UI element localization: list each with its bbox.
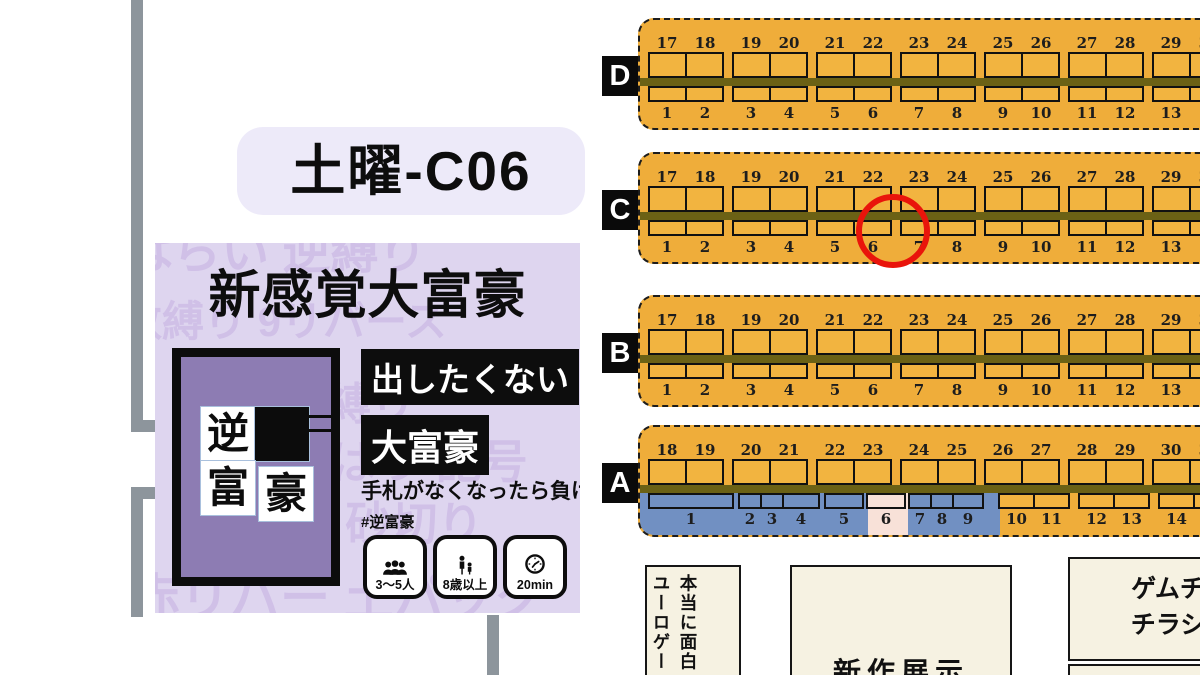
booth-number: 19 [686, 441, 724, 459]
floor-map-page: 土曜-C06 はらい 逆縛り数縛り 9リバーススート縛りしばり 記号8切り 砂切… [0, 0, 1200, 675]
booth-number: 5 [816, 104, 854, 122]
booth-A-cell-28[interactable] [1068, 459, 1107, 485]
booth-cells [640, 86, 1200, 102]
booth-number: 19 [732, 168, 770, 186]
booth-number: 21 [816, 168, 854, 186]
seat-A-7: 7 [908, 493, 932, 529]
booth-number: 12 [1106, 104, 1144, 122]
booth-A-cell-3[interactable] [760, 493, 784, 509]
booth-C-cell-3[interactable] [732, 220, 771, 236]
booth-B-cell-27[interactable] [1068, 329, 1107, 355]
booth-number: 9 [984, 238, 1022, 256]
booth-number: 27 [1068, 34, 1106, 52]
booth-C-cell-2[interactable] [685, 220, 724, 236]
booth-cells-custom: 123456789101112131415 [640, 493, 1200, 529]
booth-number: 19 [732, 311, 770, 329]
booth-row-A: 1819202122232425262728293031123456789101… [638, 425, 1200, 537]
booth-A-cell-22[interactable] [816, 459, 855, 485]
row-label-D: D [602, 56, 638, 96]
booth-cells [640, 363, 1200, 379]
booth-number: 28 [1068, 441, 1106, 459]
booth-number: 8 [938, 381, 976, 399]
wall-left-lower [131, 487, 143, 617]
booth-B-cell-14[interactable] [1189, 363, 1200, 379]
booth-number: 24 [938, 34, 976, 52]
booth-C-cell-14[interactable] [1189, 220, 1200, 236]
booth-B-cell-21[interactable] [816, 329, 855, 355]
catch-copy-top: 出したくない [361, 349, 579, 405]
booth-number: 20 [732, 441, 770, 459]
booth-D-cell-21[interactable] [816, 52, 855, 78]
booth-number: 13 [1152, 238, 1190, 256]
logo-tile-gou: 豪 [259, 467, 313, 521]
booth-number: 23 [854, 441, 892, 459]
seat-A-13: 13 [1113, 493, 1150, 529]
booth-number: 6 [866, 509, 906, 529]
logo-tile-fu: 富 [201, 461, 255, 515]
booth-row-B: 1718192021222324252627282930123456789101… [638, 295, 1200, 407]
booth-number: 8 [938, 238, 976, 256]
booth-number: 12 [1106, 381, 1144, 399]
booth-number: 10 [1022, 381, 1060, 399]
booth-B-cell-11[interactable] [1068, 363, 1107, 379]
booth-D-cell-12[interactable] [1105, 86, 1144, 102]
booth-number: 21 [770, 441, 808, 459]
seat-A-1: 1 [648, 493, 734, 529]
booth-number: 21 [816, 311, 854, 329]
booth-A-cell-10[interactable] [998, 493, 1035, 509]
booth-number: 9 [984, 381, 1022, 399]
booth-C-cell-4[interactable] [769, 220, 808, 236]
age-label: 8歳以上 [443, 578, 487, 593]
booth-A-cell-9[interactable] [952, 493, 984, 509]
booth-A-cell-25[interactable] [937, 459, 976, 485]
booth-number: 21 [816, 34, 854, 52]
booth-number: 27 [1068, 311, 1106, 329]
booth-A-cell-12[interactable] [1078, 493, 1115, 509]
booth-number: 25 [984, 168, 1022, 186]
flyer-title: 新感覚大富豪 [155, 253, 580, 328]
game-logo-box: 逆 富 豪 [172, 348, 340, 586]
booth-number: 13 [1113, 509, 1150, 529]
booth-number: 13 [1152, 381, 1190, 399]
booth-number: 9 [984, 104, 1022, 122]
booth-C-cell-11[interactable] [1068, 220, 1107, 236]
booth-A-cell-18[interactable] [648, 459, 687, 485]
players-badge: 3〜5人 [363, 535, 427, 599]
booth-C-cell-27[interactable] [1068, 186, 1107, 212]
booth-B-cell-24[interactable] [937, 329, 976, 355]
booth-number: 22 [854, 34, 892, 52]
booth-A-cell-8[interactable] [930, 493, 954, 509]
booth-B-cell-30[interactable] [1189, 329, 1200, 355]
booth-A-cell-24[interactable] [900, 459, 939, 485]
booth-numbers-top: 1819202122232425262728293031 [640, 427, 1200, 459]
players-icon [380, 560, 410, 577]
booth-B-cell-17[interactable] [648, 329, 687, 355]
booth-number: 12 [1106, 238, 1144, 256]
booth-D-cell-30[interactable] [1189, 52, 1200, 78]
booth-C-cell-26[interactable] [1021, 186, 1060, 212]
booth-A-cell-4[interactable] [782, 493, 820, 509]
booth-number: 30 [1152, 441, 1190, 459]
booth-number: 24 [938, 168, 976, 186]
booth-number: 14 [1190, 381, 1200, 399]
booth-number: 7 [900, 104, 938, 122]
booth-D-cell-18[interactable] [685, 52, 724, 78]
booth-number: 20 [770, 34, 808, 52]
booth-number: 5 [824, 509, 864, 529]
booth-number: 3 [732, 104, 770, 122]
flyer-rack-booth: ゲムチ チラシ [1068, 557, 1200, 661]
booth-number: 2 [686, 104, 724, 122]
booth-B-cell-8[interactable] [937, 363, 976, 379]
booth-number: 24 [900, 441, 938, 459]
booth-B-cell-29[interactable] [1152, 329, 1191, 355]
booth-D-cell-14[interactable] [1189, 86, 1200, 102]
booth-A-cell-15[interactable] [1193, 493, 1200, 509]
booth-number: 7 [900, 381, 938, 399]
booth-number: 23 [900, 168, 938, 186]
booth-B-cell-5[interactable] [816, 363, 855, 379]
booth-cells [640, 329, 1200, 355]
booth-D-cell-28[interactable] [1105, 52, 1144, 78]
booth-number: 20 [770, 311, 808, 329]
age-icon [454, 555, 476, 577]
booth-C-cell-8[interactable] [937, 220, 976, 236]
booth-number: 7 [908, 509, 932, 529]
booth-B-cell-12[interactable] [1105, 363, 1144, 379]
booth-numbers-top: 1718192021222324252627282930 [640, 154, 1200, 186]
flyer-rack-label: ゲムチ チラシ [1070, 559, 1200, 643]
booth-number: 29 [1152, 311, 1190, 329]
booth-A-cell-21[interactable] [769, 459, 808, 485]
booth-C-cell-17[interactable] [648, 186, 687, 212]
booth-D-cell-29[interactable] [1152, 52, 1191, 78]
booth-C-cell-24[interactable] [937, 186, 976, 212]
booth-B-cell-20[interactable] [769, 329, 808, 355]
booth-number: 14 [1158, 509, 1195, 529]
booth-D-cell-23[interactable] [900, 52, 939, 78]
booth-cells [640, 459, 1200, 485]
booth-number: 9 [952, 509, 984, 529]
booth-D-cell-2[interactable] [685, 86, 724, 102]
catch-copy-bottom: 大富豪 [361, 415, 489, 475]
booth-D-cell-25[interactable] [984, 52, 1023, 78]
booth-number: 30 [1190, 311, 1200, 329]
booth-D-cell-27[interactable] [1068, 52, 1107, 78]
booth-number: 10 [1022, 238, 1060, 256]
table-band [640, 355, 1200, 363]
booth-number: 25 [984, 311, 1022, 329]
booth-number: 1 [648, 381, 686, 399]
booth-A-cell-31[interactable] [1189, 459, 1200, 485]
booth-number: 2 [686, 238, 724, 256]
booth-A-cell-11[interactable] [1033, 493, 1070, 509]
booth-number: 5 [816, 381, 854, 399]
booth-D-cell-11[interactable] [1068, 86, 1107, 102]
booth-B-cell-18[interactable] [685, 329, 724, 355]
booth-number: 13 [1152, 104, 1190, 122]
booth-C-cell-9[interactable] [984, 220, 1023, 236]
booth-number: 2 [738, 509, 762, 529]
new-works-label: 新作展示 [792, 651, 1010, 675]
booth-number: 5 [816, 238, 854, 256]
new-works-booth: 新作展示 [790, 565, 1012, 675]
seat-A-8: 8 [930, 493, 954, 529]
seat-A-2: 2 [738, 493, 762, 529]
booth-number: 30 [1190, 34, 1200, 52]
booth-D-cell-3[interactable] [732, 86, 771, 102]
booth-number: 8 [930, 509, 954, 529]
booth-number: 6 [854, 104, 892, 122]
booth-A-cell-20[interactable] [732, 459, 771, 485]
booth-A-cell-1[interactable] [648, 493, 734, 509]
booth-C-cell-20[interactable] [769, 186, 808, 212]
seat-A-5: 5 [824, 493, 864, 529]
booth-number: 6 [854, 381, 892, 399]
booth-number: 15 [1193, 509, 1200, 529]
flyer-tagline: 手札がなくなったら負け [361, 475, 580, 505]
seat-A-10: 10 [998, 493, 1035, 529]
booth-B-cell-26[interactable] [1021, 329, 1060, 355]
time-badge: 20min [503, 535, 567, 599]
booth-number: 4 [770, 381, 808, 399]
booth-number: 26 [1022, 34, 1060, 52]
booth-number: 11 [1033, 509, 1070, 529]
booth-B-cell-10[interactable] [1021, 363, 1060, 379]
booth-D-cell-19[interactable] [732, 52, 771, 78]
booth-D-cell-22[interactable] [853, 52, 892, 78]
booth-number: 10 [1022, 104, 1060, 122]
booth-number: 20 [770, 168, 808, 186]
booth-row-D: 1718192021222324252627282930123456789101… [638, 18, 1200, 130]
booth-number: 26 [1022, 311, 1060, 329]
booth-C-cell-28[interactable] [1105, 186, 1144, 212]
booth-B-cell-25[interactable] [984, 329, 1023, 355]
booth-numbers-bottom: 1234567891011121314 [640, 102, 1200, 128]
row-label-B: B [602, 333, 638, 373]
booth-D-cell-8[interactable] [937, 86, 976, 102]
booth-C-cell-29[interactable] [1152, 186, 1191, 212]
booth-A-cell-7[interactable] [908, 493, 932, 509]
booth-D-cell-20[interactable] [769, 52, 808, 78]
booth-D-cell-6[interactable] [853, 86, 892, 102]
booth-number: 2 [686, 381, 724, 399]
booth-D-cell-17[interactable] [648, 52, 687, 78]
glitch-line [293, 429, 340, 432]
booth-number: 28 [1106, 34, 1144, 52]
booth-number: 28 [1106, 168, 1144, 186]
booth-number: 23 [900, 311, 938, 329]
booth-D-cell-10[interactable] [1021, 86, 1060, 102]
row-label-A: A [602, 463, 638, 503]
booth-number: 1 [648, 104, 686, 122]
booth-number: 12 [1078, 509, 1115, 529]
booth-number: 3 [732, 381, 770, 399]
booth-number: 27 [1022, 441, 1060, 459]
booth-A-cell-30[interactable] [1152, 459, 1191, 485]
age-badge: 8歳以上 [433, 535, 497, 599]
booth-D-cell-26[interactable] [1021, 52, 1060, 78]
booth-C-cell-12[interactable] [1105, 220, 1144, 236]
booth-number: 4 [770, 238, 808, 256]
seat-A-6: 6 [866, 493, 906, 529]
booth-C-cell-10[interactable] [1021, 220, 1060, 236]
booth-numbers-top: 1718192021222324252627282930 [640, 297, 1200, 329]
booth-number: 17 [648, 34, 686, 52]
bottom-right-booth [1068, 664, 1200, 675]
booth-A-cell-19[interactable] [685, 459, 724, 485]
booth-C-cell-21[interactable] [816, 186, 855, 212]
booth-B-cell-28[interactable] [1105, 329, 1144, 355]
booth-D-cell-1[interactable] [648, 86, 687, 102]
seat-A-9: 9 [952, 493, 984, 529]
booth-number: 19 [732, 34, 770, 52]
booth-number: 17 [648, 168, 686, 186]
booth-B-cell-3[interactable] [732, 363, 771, 379]
logo-tile-gyaku: 逆 [201, 407, 255, 461]
booth-A-cell-29[interactable] [1105, 459, 1144, 485]
booth-B-cell-6[interactable] [853, 363, 892, 379]
booth-cells [640, 52, 1200, 78]
glitch-line [281, 415, 340, 418]
seat-A-4: 4 [782, 493, 820, 529]
wall-bottom-center [487, 615, 499, 675]
booth-number: 22 [816, 441, 854, 459]
booth-C-cell-19[interactable] [732, 186, 771, 212]
time-icon [523, 553, 547, 577]
flyer-hashtag: #逆富豪 [361, 511, 414, 532]
booth-numbers-bottom: 1234567891011121314 [640, 379, 1200, 405]
booth-B-cell-23[interactable] [900, 329, 939, 355]
booth-D-cell-13[interactable] [1152, 86, 1191, 102]
booth-B-cell-13[interactable] [1152, 363, 1191, 379]
booth-C-cell-13[interactable] [1152, 220, 1191, 236]
booth-D-cell-7[interactable] [900, 86, 939, 102]
booth-B-cell-9[interactable] [984, 363, 1023, 379]
booth-number: 10 [998, 509, 1035, 529]
seat-A-11: 11 [1033, 493, 1070, 529]
highlight-circle [856, 194, 930, 268]
booth-number: 25 [984, 34, 1022, 52]
booth-number: 30 [1190, 168, 1200, 186]
booth-number: 24 [938, 311, 976, 329]
booth-number: 8 [938, 104, 976, 122]
booth-number: 26 [984, 441, 1022, 459]
booth-A-cell-23[interactable] [853, 459, 892, 485]
booth-A-cell-14[interactable] [1158, 493, 1195, 509]
booth-C-cell-5[interactable] [816, 220, 855, 236]
game-flyer: はらい 逆縛り数縛り 9リバーススート縛りしばり 記号8切り 砂切り赤リバー 土… [155, 243, 580, 613]
booth-number: 29 [1152, 168, 1190, 186]
booth-number: 29 [1106, 441, 1144, 459]
seat-A-15: 15 [1193, 493, 1200, 529]
euro-games-booth: 本当に面白 ユーロゲー [645, 565, 741, 675]
booth-number-tag: 土曜-C06 [237, 127, 585, 215]
booth-C-cell-30[interactable] [1189, 186, 1200, 212]
booth-number: 22 [854, 168, 892, 186]
booth-number: 3 [760, 509, 784, 529]
booth-C-cell-1[interactable] [648, 220, 687, 236]
booth-number: 18 [686, 168, 724, 186]
booth-number: 18 [648, 441, 686, 459]
booth-B-cell-1[interactable] [648, 363, 687, 379]
booth-number: 26 [1022, 168, 1060, 186]
booth-D-cell-5[interactable] [816, 86, 855, 102]
booth-number: 23 [900, 34, 938, 52]
players-label: 3〜5人 [376, 578, 415, 593]
booth-number: 22 [854, 311, 892, 329]
seat-A-3: 3 [760, 493, 784, 529]
booth-D-cell-24[interactable] [937, 52, 976, 78]
booth-number: 27 [1068, 168, 1106, 186]
booth-number: 31 [1190, 441, 1200, 459]
booth-C-cell-18[interactable] [685, 186, 724, 212]
booth-number: 14 [1190, 238, 1200, 256]
booth-B-cell-4[interactable] [769, 363, 808, 379]
booth-number: 18 [686, 311, 724, 329]
booth-A-cell-27[interactable] [1021, 459, 1060, 485]
booth-D-cell-4[interactable] [769, 86, 808, 102]
seat-A-12: 12 [1078, 493, 1115, 529]
booth-C-cell-25[interactable] [984, 186, 1023, 212]
table-band [640, 78, 1200, 86]
booth-number: 1 [648, 509, 734, 529]
booth-A-cell-6[interactable] [866, 493, 906, 509]
booth-D-cell-9[interactable] [984, 86, 1023, 102]
euro-games-label: 本当に面白 ユーロゲー [647, 567, 709, 675]
booth-number: 4 [782, 509, 820, 529]
booth-numbers-top: 1718192021222324252627282930 [640, 20, 1200, 52]
wall-left-upper [131, 0, 143, 432]
booth-B-cell-22[interactable] [853, 329, 892, 355]
row-label-C: C [602, 190, 638, 230]
booth-number: 17 [648, 311, 686, 329]
booth-number: 25 [938, 441, 976, 459]
booth-number: 18 [686, 34, 724, 52]
booth-number: 29 [1152, 34, 1190, 52]
booth-number: 11 [1068, 238, 1106, 256]
booth-number: 11 [1068, 381, 1106, 399]
booth-number: 14 [1190, 104, 1200, 122]
booth-number: 11 [1068, 104, 1106, 122]
booth-B-cell-19[interactable] [732, 329, 771, 355]
booth-number: 1 [648, 238, 686, 256]
booth-number: 3 [732, 238, 770, 256]
table-band [640, 485, 1200, 493]
booth-number: 28 [1106, 311, 1144, 329]
booth-A-cell-26[interactable] [984, 459, 1023, 485]
booth-B-cell-2[interactable] [685, 363, 724, 379]
booth-A-cell-5[interactable] [824, 493, 864, 509]
booth-A-cell-13[interactable] [1113, 493, 1150, 509]
booth-number: 4 [770, 104, 808, 122]
booth-B-cell-7[interactable] [900, 363, 939, 379]
time-label: 20min [517, 578, 553, 593]
booth-A-cell-2[interactable] [738, 493, 762, 509]
seat-A-14: 14 [1158, 493, 1195, 529]
